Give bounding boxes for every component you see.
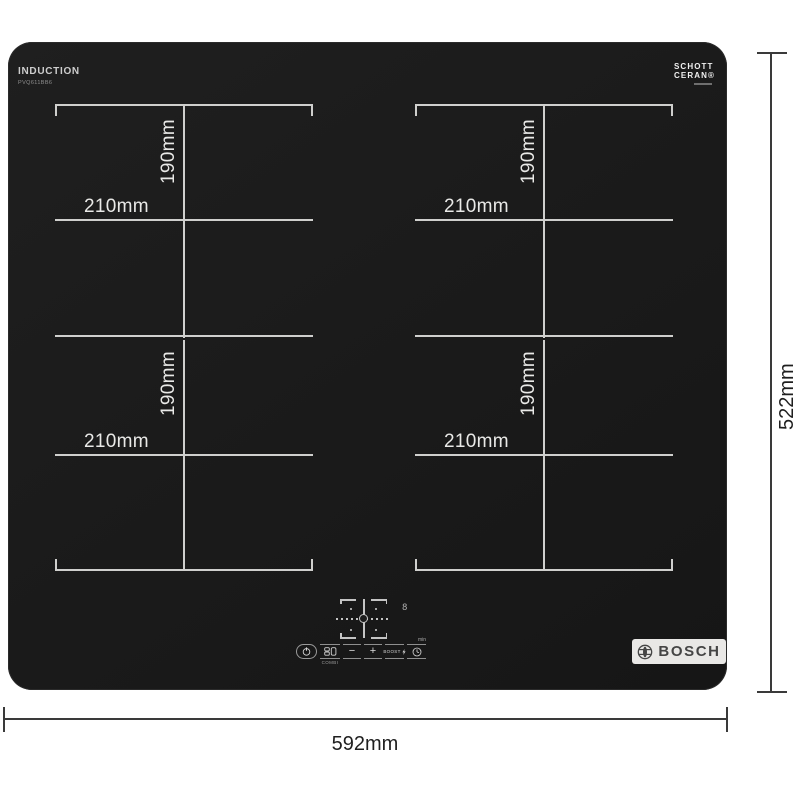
overall-width-label: 592mm	[295, 733, 435, 756]
zone-right-middle-line	[415, 335, 673, 337]
selector-dot-tl	[350, 608, 352, 610]
zone-br-bottom-tick-right	[671, 559, 673, 571]
power-button	[296, 644, 317, 659]
zone-tl-top-tick-right	[311, 104, 313, 116]
selector-bracket-bl-tick	[340, 633, 342, 638]
zone-bl-bottom-line	[55, 569, 313, 571]
width-dimension-cap-left	[3, 707, 5, 732]
combi-zone-key	[320, 644, 340, 659]
schott-logo-line1: SCHOTT	[674, 62, 716, 71]
model-number: PVQ611BB6	[18, 80, 52, 86]
timer-min-label: min	[409, 637, 426, 643]
zone-tr-depth-label: 190mm	[518, 120, 540, 184]
zone-tl-top-tick-left	[55, 104, 57, 116]
zone-br-depth-label: 190mm	[518, 352, 540, 416]
zone-bl-width-label: 210mm	[84, 431, 149, 453]
bosch-logo: BOSCH	[632, 639, 726, 664]
combi-zone-icon	[324, 647, 337, 656]
zone-bl-horizontal-line	[55, 454, 313, 456]
zone-bl-bottom-tick-left	[55, 559, 57, 571]
induction-label: INDUCTION	[18, 66, 80, 77]
selector-bracket-tr-tick	[386, 599, 388, 604]
overall-depth-label: 522mm	[776, 352, 798, 442]
schott-fine-print-bar	[694, 83, 712, 85]
selector-dot-br	[375, 629, 377, 631]
width-dimension-line	[3, 718, 727, 720]
zone-br-bottom-line	[415, 569, 673, 571]
zone-left-middle-line	[55, 335, 313, 337]
selector-bracket-bl	[340, 637, 356, 639]
timer-key	[407, 644, 426, 659]
zone-bl-depth-label: 190mm	[158, 352, 180, 416]
zone-tl-vertical-line	[183, 104, 185, 338]
zone-tr-top-tick-right	[671, 104, 673, 116]
power-level-display: 8	[402, 603, 407, 613]
depth-dimension-cap-top	[757, 52, 787, 54]
selector-bracket-br-tick	[386, 633, 388, 638]
plus-key: +	[364, 644, 382, 659]
minus-key: −	[343, 644, 361, 659]
selector-bracket-tl-tick	[340, 599, 342, 604]
zone-bl-bottom-tick-right	[311, 559, 313, 571]
boost-icon	[402, 649, 406, 655]
zone-br-bottom-tick-left	[415, 559, 417, 571]
boost-label: BOOST	[383, 649, 400, 654]
zone-br-horizontal-line	[415, 454, 673, 456]
depth-dimension-cap-bottom	[757, 691, 787, 693]
clock-icon	[412, 647, 422, 657]
zone-tl-width-label: 210mm	[84, 196, 149, 218]
schott-logo-line2: CERAN®	[674, 71, 716, 80]
zone-tl-horizontal-line	[55, 219, 313, 221]
power-icon	[302, 647, 311, 656]
selector-dot-tr	[375, 608, 377, 610]
zone-tr-width-label: 210mm	[444, 196, 509, 218]
selector-bracket-tl	[340, 599, 356, 601]
zone-tl-depth-label: 190mm	[158, 120, 180, 184]
schott-ceran-logo: SCHOTT CERAN®	[674, 62, 716, 85]
induction-hob-surface	[8, 42, 727, 690]
selector-dot-bl	[350, 629, 352, 631]
selector-center-circle	[359, 614, 368, 623]
bosch-armature-icon	[637, 644, 653, 660]
zone-tr-vertical-line	[543, 104, 545, 338]
width-dimension-cap-right	[726, 707, 728, 732]
combi-label: COMBI	[317, 660, 343, 665]
zone-br-width-label: 210mm	[444, 431, 509, 453]
zone-tr-horizontal-line	[415, 219, 673, 221]
bosch-wordmark: BOSCH	[658, 643, 720, 660]
depth-dimension-line	[770, 52, 772, 692]
zone-tr-top-tick-left	[415, 104, 417, 116]
boost-key: BOOST	[385, 644, 404, 659]
product-dimension-diagram: INDUCTION PVQ611BB6 SCHOTT CERAN® 190mm …	[0, 0, 800, 800]
